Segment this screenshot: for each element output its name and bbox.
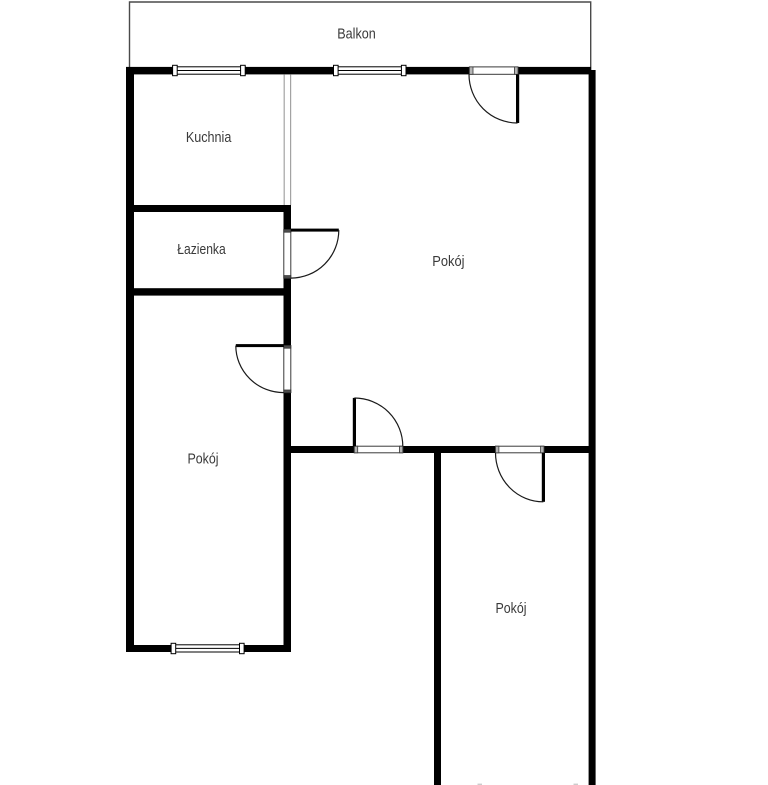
svg-text:Pokój: Pokój <box>188 451 219 467</box>
svg-text:Łazienka: Łazienka <box>177 242 225 258</box>
svg-text:Pokój: Pokój <box>496 601 527 617</box>
svg-text:Balkon: Balkon <box>337 27 376 43</box>
svg-text:Pokój: Pokój <box>432 254 464 270</box>
svg-text:Kuchnia: Kuchnia <box>186 130 232 146</box>
